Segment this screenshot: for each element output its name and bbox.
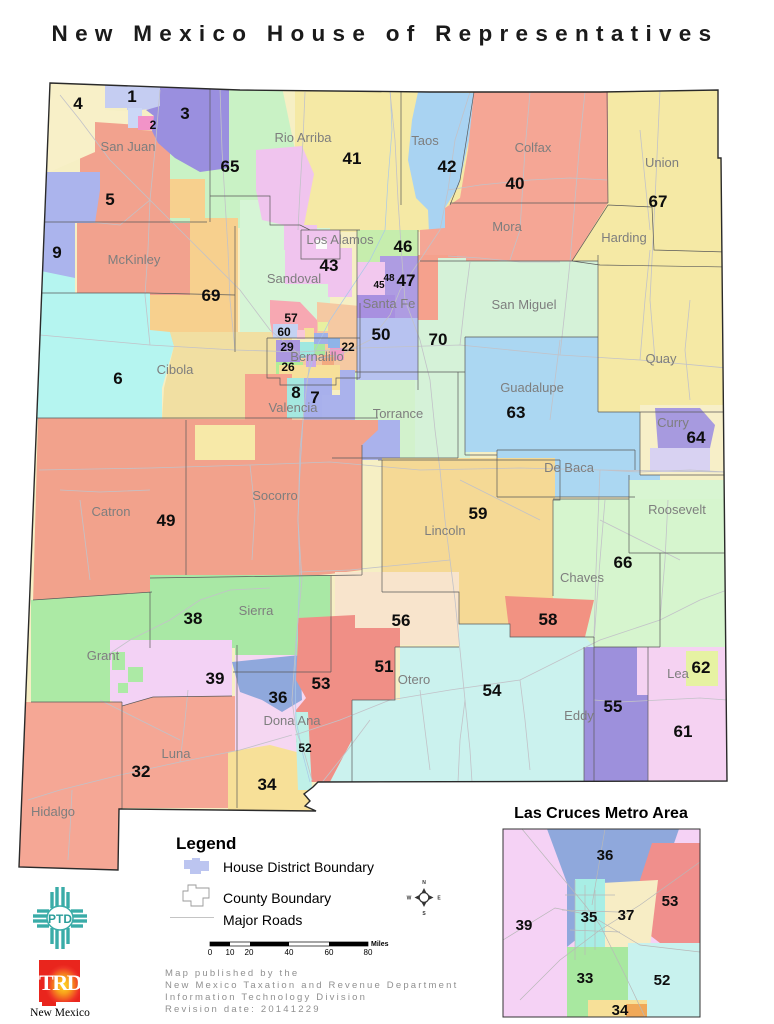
svg-text:10: 10	[226, 948, 235, 957]
svg-text:4: 4	[73, 94, 83, 113]
svg-text:55: 55	[604, 697, 623, 716]
svg-text:Sierra: Sierra	[239, 603, 274, 618]
svg-text:Harding: Harding	[601, 230, 647, 245]
svg-text:64: 64	[687, 428, 706, 447]
svg-text:5: 5	[105, 190, 114, 209]
svg-text:39: 39	[206, 669, 225, 688]
svg-text:41: 41	[343, 149, 362, 168]
svg-text:N: N	[422, 880, 426, 886]
svg-text:20: 20	[245, 948, 254, 957]
svg-text:6: 6	[113, 369, 122, 388]
svg-text:51: 51	[375, 657, 394, 676]
svg-text:34: 34	[612, 1002, 629, 1019]
svg-text:E: E	[437, 896, 441, 902]
svg-text:De Baca: De Baca	[544, 460, 595, 475]
svg-text:W: W	[407, 896, 412, 902]
svg-text:58: 58	[539, 610, 558, 629]
svg-text:63: 63	[507, 403, 526, 422]
svg-text:Otero: Otero	[398, 672, 431, 687]
svg-text:Curry: Curry	[657, 415, 689, 430]
svg-text:Major Roads: Major Roads	[223, 912, 302, 928]
svg-text:34: 34	[258, 775, 277, 794]
svg-text:Lea: Lea	[667, 666, 689, 681]
svg-text:7: 7	[310, 388, 319, 407]
svg-text:Colfax: Colfax	[515, 140, 552, 155]
svg-text:67: 67	[649, 192, 668, 211]
svg-text:Grant: Grant	[87, 648, 120, 663]
svg-text:59: 59	[469, 504, 488, 523]
svg-text:Torrance: Torrance	[373, 406, 424, 421]
svg-text:San Miguel: San Miguel	[491, 297, 556, 312]
svg-text:San Juan: San Juan	[101, 139, 156, 154]
svg-text:Rio Arriba: Rio Arriba	[274, 130, 332, 145]
svg-text:0: 0	[208, 948, 213, 957]
svg-text:1: 1	[127, 87, 136, 106]
svg-text:37: 37	[618, 907, 635, 924]
svg-text:Catron: Catron	[91, 504, 130, 519]
svg-text:New Mexico House of Representa: New Mexico House of Representatives	[52, 21, 719, 46]
svg-text:62: 62	[692, 658, 711, 677]
svg-text:House District Boundary: House District Boundary	[223, 859, 374, 875]
svg-text:9: 9	[52, 243, 61, 262]
svg-text:Los Alamos: Los Alamos	[306, 232, 374, 247]
svg-text:3: 3	[180, 104, 189, 123]
svg-text:County Boundary: County Boundary	[223, 890, 331, 906]
svg-text:Union: Union	[645, 155, 679, 170]
svg-text:Mora: Mora	[492, 219, 522, 234]
svg-text:54: 54	[483, 681, 502, 700]
svg-text:38: 38	[184, 609, 203, 628]
svg-text:Legend: Legend	[176, 834, 236, 853]
svg-text:48: 48	[383, 273, 395, 284]
svg-text:TRD: TRD	[39, 970, 82, 995]
svg-text:Taos: Taos	[411, 133, 439, 148]
svg-text:52: 52	[298, 741, 312, 755]
svg-text:New Mexico: New Mexico	[30, 1007, 90, 1019]
svg-text:52: 52	[654, 972, 671, 989]
svg-text:Dona Ana: Dona Ana	[263, 713, 321, 728]
svg-text:35: 35	[581, 909, 598, 926]
svg-text:S: S	[422, 911, 426, 917]
svg-text:66: 66	[614, 553, 633, 572]
svg-text:40: 40	[506, 174, 525, 193]
svg-text:80: 80	[364, 948, 373, 957]
svg-text:Guadalupe: Guadalupe	[500, 380, 564, 395]
svg-text:Santa Fe: Santa Fe	[363, 296, 416, 311]
svg-text:57: 57	[284, 311, 298, 325]
svg-text:Quay: Quay	[645, 351, 677, 366]
svg-text:40: 40	[285, 948, 294, 957]
svg-text:29: 29	[280, 340, 294, 354]
svg-text:Revision date: 20141229: Revision date: 20141229	[165, 1004, 321, 1015]
svg-text:Chaves: Chaves	[560, 570, 605, 585]
svg-text:70: 70	[429, 330, 448, 349]
svg-text:Miles: Miles	[371, 941, 389, 948]
svg-text:New Mexico Taxation and Revenu: New Mexico Taxation and Revenue Departme…	[165, 980, 458, 991]
svg-text:PTD: PTD	[48, 912, 72, 926]
svg-text:32: 32	[132, 762, 151, 781]
svg-text:Cibola: Cibola	[157, 362, 195, 377]
svg-text:Roosevelt: Roosevelt	[648, 502, 706, 517]
svg-text:8: 8	[291, 383, 300, 402]
svg-text:22: 22	[341, 340, 355, 354]
svg-text:Eddy: Eddy	[564, 708, 594, 723]
svg-text:43: 43	[320, 256, 339, 275]
svg-text:45: 45	[373, 280, 385, 291]
svg-text:60: 60	[325, 948, 334, 957]
svg-text:69: 69	[202, 286, 221, 305]
svg-text:56: 56	[392, 611, 411, 630]
svg-text:60: 60	[277, 325, 291, 339]
svg-text:Las Cruces Metro Area: Las Cruces Metro Area	[514, 805, 688, 822]
svg-text:33: 33	[577, 970, 594, 987]
svg-text:Lincoln: Lincoln	[424, 523, 465, 538]
svg-text:Map published by the: Map published by the	[165, 968, 299, 979]
svg-text:46: 46	[394, 237, 413, 256]
svg-text:61: 61	[674, 722, 693, 741]
svg-text:McKinley: McKinley	[108, 252, 161, 267]
svg-text:36: 36	[269, 688, 288, 707]
svg-text:47: 47	[397, 271, 416, 290]
svg-text:Luna: Luna	[162, 746, 192, 761]
svg-text:49: 49	[157, 511, 176, 530]
svg-text:Sandoval: Sandoval	[267, 271, 321, 286]
svg-text:Information Technology Divisio: Information Technology Division	[165, 992, 367, 1003]
svg-text:36: 36	[597, 847, 614, 864]
svg-text:Bernalillo: Bernalillo	[290, 349, 343, 364]
svg-text:53: 53	[312, 674, 331, 693]
svg-text:Socorro: Socorro	[252, 488, 298, 503]
svg-text:53: 53	[662, 893, 679, 910]
svg-text:50: 50	[372, 325, 391, 344]
svg-text:65: 65	[221, 157, 240, 176]
svg-text:26: 26	[281, 360, 295, 374]
svg-text:39: 39	[516, 917, 533, 934]
svg-text:Hidalgo: Hidalgo	[31, 804, 75, 819]
svg-text:2: 2	[150, 118, 157, 132]
svg-text:42: 42	[438, 157, 457, 176]
